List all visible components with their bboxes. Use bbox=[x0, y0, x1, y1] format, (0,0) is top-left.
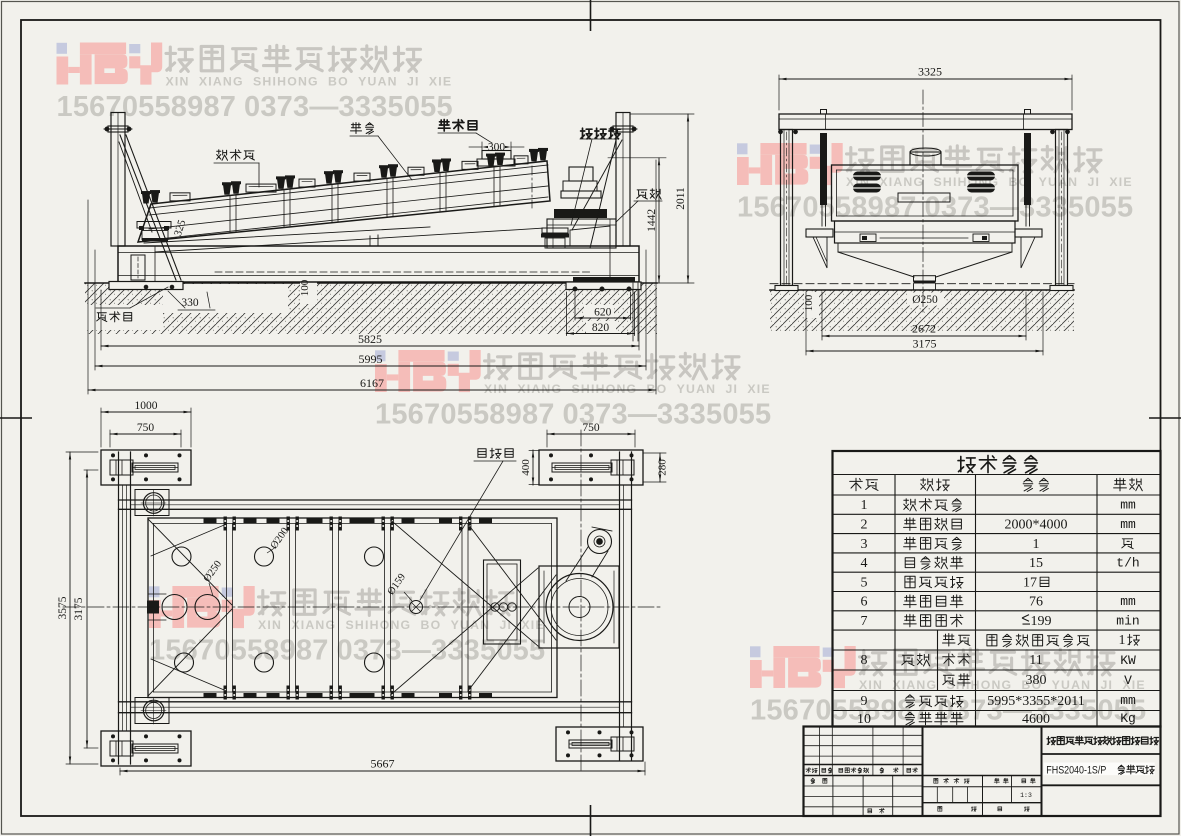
svg-text:76: 76 bbox=[1029, 595, 1043, 610]
svg-text:100: 100 bbox=[299, 279, 311, 296]
svg-text:min: min bbox=[1116, 613, 1139, 628]
svg-text:7: 7 bbox=[861, 614, 868, 629]
svg-text:6167: 6167 bbox=[360, 376, 384, 390]
svg-text:XIN XIANG SHIHONG BO YUAN: XIN XIANG SHIHONG BO YUAN JI XIE bbox=[859, 678, 1146, 692]
svg-text:XIN XIANG SHIHONG BO YUAN: XIN XIANG SHIHONG BO YUAN JI XIE bbox=[258, 618, 545, 632]
svg-text:199: 199 bbox=[1031, 614, 1052, 629]
svg-text:V: V bbox=[1124, 673, 1132, 688]
svg-text:3175: 3175 bbox=[73, 597, 85, 620]
svg-text:4600: 4600 bbox=[1022, 712, 1050, 727]
svg-text:15670558987: 15670558987 bbox=[57, 91, 237, 123]
svg-text:3575: 3575 bbox=[57, 596, 69, 619]
svg-text:2000*4000: 2000*4000 bbox=[1005, 517, 1068, 532]
svg-text:1000: 1000 bbox=[135, 400, 158, 412]
svg-text:6: 6 bbox=[861, 595, 868, 610]
svg-text:t/h: t/h bbox=[1116, 556, 1139, 571]
svg-text:2672: 2672 bbox=[912, 322, 936, 336]
svg-text:750: 750 bbox=[582, 422, 600, 434]
svg-text:400: 400 bbox=[520, 459, 532, 476]
svg-text:5: 5 bbox=[861, 575, 868, 590]
svg-text:mm: mm bbox=[1120, 594, 1136, 609]
svg-text:2011: 2011 bbox=[675, 187, 687, 210]
svg-text:17: 17 bbox=[1023, 575, 1037, 590]
svg-text:XIN XIANG SHIHONG BO YUAN: XIN XIANG SHIHONG BO YUAN JI XIE bbox=[484, 382, 771, 396]
svg-text:280: 280 bbox=[657, 459, 669, 476]
svg-text:300: 300 bbox=[488, 142, 506, 154]
svg-text:4: 4 bbox=[861, 556, 868, 571]
svg-text:mm: mm bbox=[1120, 517, 1136, 532]
svg-text:3175: 3175 bbox=[913, 337, 937, 351]
svg-text:1: 1 bbox=[1033, 537, 1040, 552]
svg-text:5995*3355*2011: 5995*3355*2011 bbox=[987, 694, 1084, 709]
svg-text:3325: 3325 bbox=[918, 65, 942, 79]
svg-text:1: 1 bbox=[861, 498, 868, 513]
svg-text:2: 2 bbox=[861, 517, 868, 532]
svg-text:Ø250: Ø250 bbox=[912, 294, 938, 306]
svg-text:mm: mm bbox=[1120, 693, 1136, 708]
svg-text:1:3: 1:3 bbox=[1020, 792, 1032, 799]
svg-text:100: 100 bbox=[803, 294, 815, 311]
svg-text:8: 8 bbox=[861, 653, 868, 668]
svg-text:0373—3335055: 0373—3335055 bbox=[337, 635, 546, 667]
svg-text:15670558987: 15670558987 bbox=[375, 399, 555, 431]
svg-text:620: 620 bbox=[594, 307, 612, 319]
svg-text:15670558987: 15670558987 bbox=[149, 635, 329, 667]
svg-text:KW: KW bbox=[1120, 653, 1136, 668]
svg-text:820: 820 bbox=[592, 322, 610, 334]
svg-text:XIN XIANG SHIHONG BO YUAN: XIN XIANG SHIHONG BO YUAN JI XIE bbox=[166, 74, 453, 88]
svg-text:15: 15 bbox=[1029, 556, 1043, 571]
svg-text:Kg: Kg bbox=[1120, 711, 1136, 726]
svg-text:1: 1 bbox=[1119, 633, 1126, 648]
svg-text:1442: 1442 bbox=[646, 209, 658, 232]
svg-text:5667: 5667 bbox=[371, 757, 395, 771]
svg-text:mm: mm bbox=[1120, 498, 1136, 513]
svg-text:0373—3335055: 0373—3335055 bbox=[244, 91, 453, 123]
svg-text:380: 380 bbox=[1026, 673, 1047, 688]
svg-text:5995: 5995 bbox=[359, 352, 383, 366]
svg-text:9: 9 bbox=[861, 694, 868, 709]
svg-text:10: 10 bbox=[857, 712, 871, 727]
svg-text:11: 11 bbox=[1029, 653, 1042, 668]
svg-text:3: 3 bbox=[861, 537, 868, 552]
svg-text:750: 750 bbox=[137, 422, 155, 434]
svg-text:5825: 5825 bbox=[358, 332, 382, 346]
svg-text:FHS2040-1S/P: FHS2040-1S/P bbox=[1046, 765, 1106, 777]
